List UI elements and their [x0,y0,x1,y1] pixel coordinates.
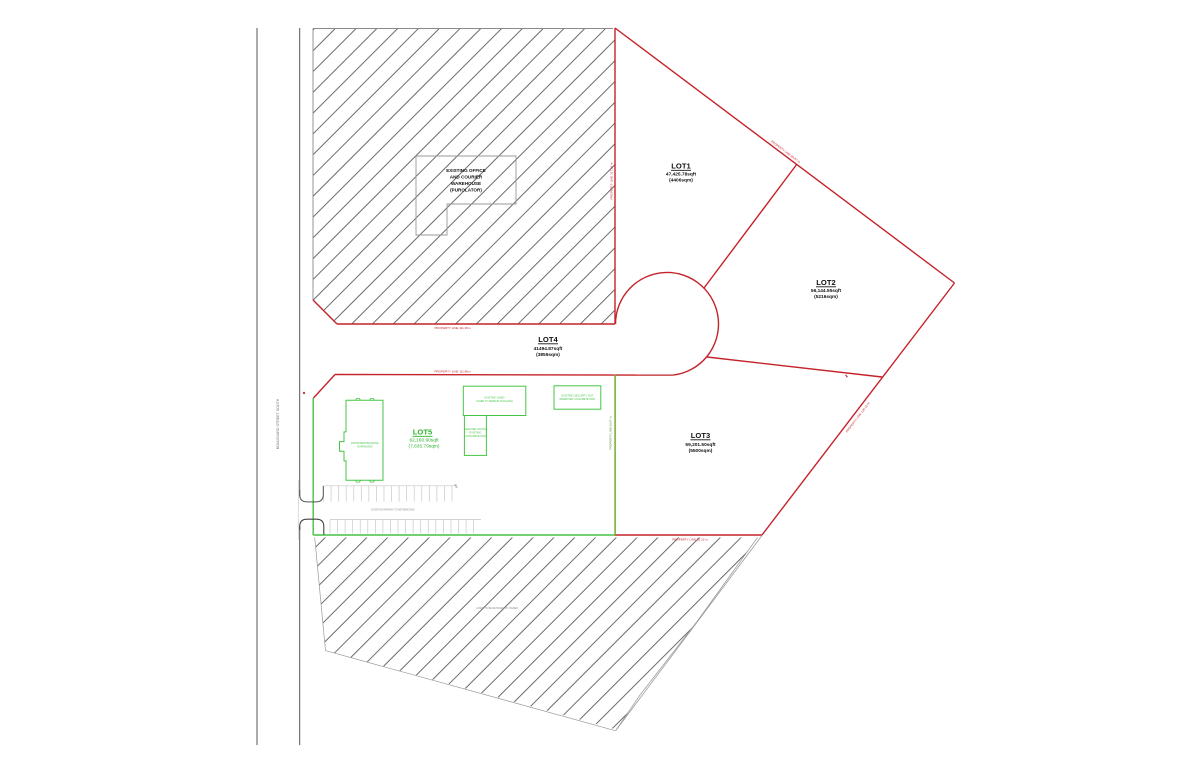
svg-text:47,425.78sqft: 47,425.78sqft [666,172,697,178]
svg-text:56,144.55sqft: 56,144.55sqft [811,288,842,294]
svg-text:(PUROLATOR): (PUROLATOR) [450,188,482,193]
svg-text:PROPERTY LINE 111.36m: PROPERTY LINE 111.36m [435,326,471,330]
svg-text:41494.87sqft: 41494.87sqft [534,346,563,352]
svg-text:LANDS TO BE RETAINED BY OWNER: LANDS TO BE RETAINED BY OWNER [476,607,518,610]
svg-text:EXISTING PARKING TO BE REMOVED: EXISTING PARKING TO BE REMOVED [372,509,415,512]
svg-text:EXISTING OFFICE: EXISTING OFFICE [446,168,486,173]
svg-text:59,201.50sqft: 59,201.50sqft [685,442,716,448]
svg-text:LOT5: LOT5 [413,428,433,437]
svg-text:EXISTING SHED: EXISTING SHED [484,396,504,400]
svg-text:(REMOVED CONCRETE PAD): (REMOVED CONCRETE PAD) [559,397,595,401]
svg-text:LOT2: LOT2 [816,278,835,287]
svg-text:PROPERTY LINE 63.07 m: PROPERTY LINE 63.07 m [609,416,613,450]
svg-text:(4406sqm): (4406sqm) [669,178,693,184]
svg-text:PROPERTY LINE 92.12 m: PROPERTY LINE 92.12 m [672,538,708,542]
svg-text:BOULEVARD STREET SOUTH: BOULEVARD STREET SOUTH [276,398,280,449]
svg-text:CONCRETE PAD: CONCRETE PAD [465,434,486,438]
svg-text:LOT4: LOT4 [538,335,558,344]
svg-text:SHELTER SOUTH: SHELTER SOUTH [465,427,487,431]
svg-text:EXISTING SECURITY HUT: EXISTING SECURITY HUT [561,394,593,398]
svg-text:EXPANSION: EXPANSION [358,445,373,449]
svg-text:AND COURIER: AND COURIER [450,175,483,180]
svg-text:WAREHOUSE: WAREHOUSE [451,181,481,186]
svg-text:(5500sqm): (5500sqm) [689,448,713,454]
svg-text:(3855sqm): (3855sqm) [536,352,560,358]
svg-text:PROPOSED BUILDING: PROPOSED BUILDING [351,441,379,445]
svg-text:(7,635.79sqm): (7,635.79sqm) [409,444,440,450]
svg-text:62,160.90sqft: 62,160.90sqft [409,438,439,444]
svg-text:PROPERTY LINE 111.86m: PROPERTY LINE 111.86m [435,369,471,373]
svg-text:(5216sqm): (5216sqm) [814,294,838,300]
svg-text:EXISTING: EXISTING [469,431,481,435]
svg-text:PROPERTY LINE 117.96 m: PROPERTY LINE 117.96 m [609,162,613,200]
svg-text:(SHED TO REMAIN IN PLACE): (SHED TO REMAIN IN PLACE) [476,399,513,403]
svg-text:LOT1: LOT1 [671,162,691,171]
svg-text:LOT3: LOT3 [691,431,710,440]
